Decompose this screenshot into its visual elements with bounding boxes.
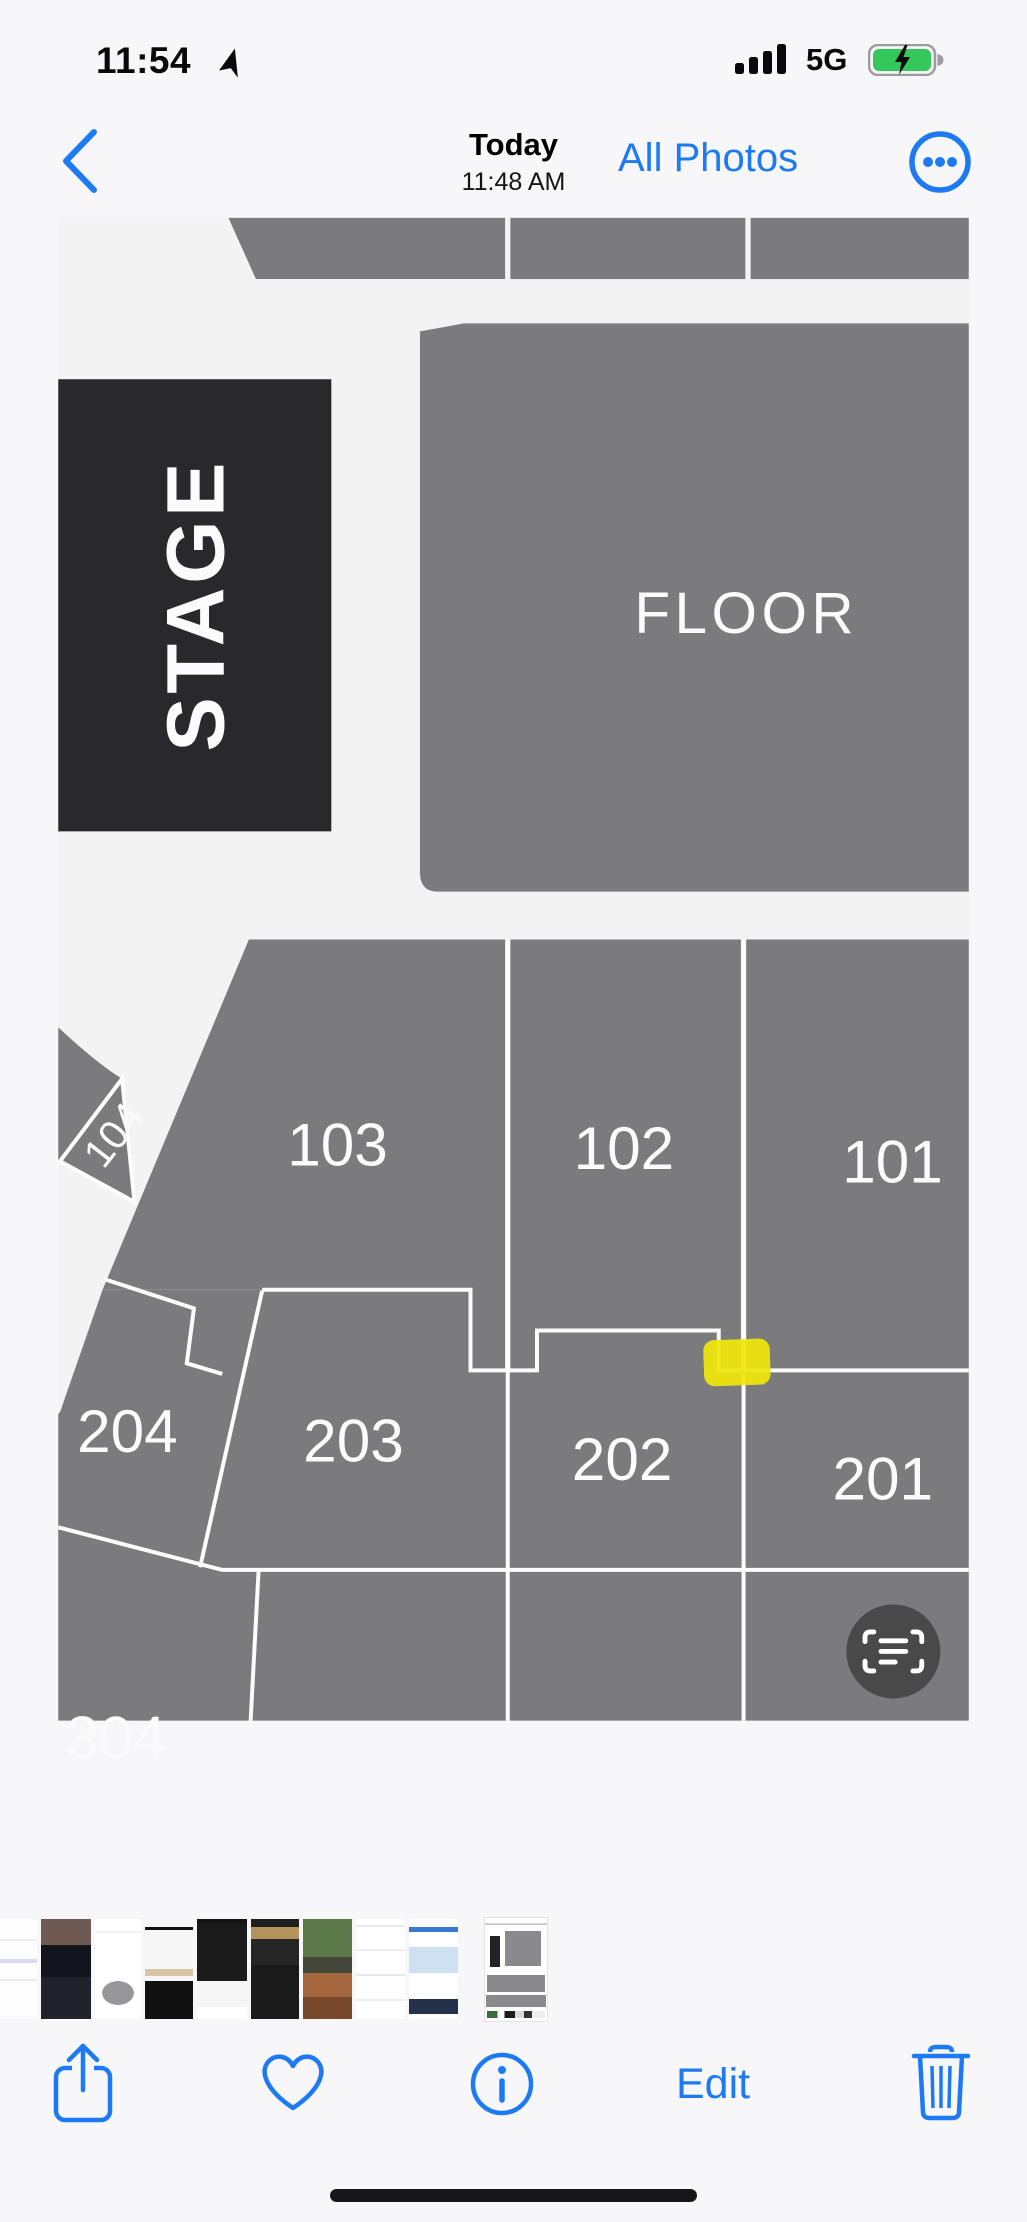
section-201-label: 201 xyxy=(832,1445,933,1513)
all-photos-button[interactable]: All Photos xyxy=(618,136,798,181)
mini-sections-lower xyxy=(486,1995,546,2006)
section-202-label: 202 xyxy=(572,1425,673,1493)
thumbnail[interactable] xyxy=(409,1919,458,2019)
battery-charging-icon xyxy=(868,44,948,76)
info-circle-icon[interactable] xyxy=(468,2050,536,2118)
edit-button[interactable]: Edit xyxy=(676,2060,750,2109)
section-204-label: 204 xyxy=(77,1397,178,1465)
thumbnail[interactable] xyxy=(356,1919,405,2019)
cellular-signal-icon xyxy=(735,44,793,74)
stage-label: STAGE xyxy=(150,459,241,752)
trash-icon[interactable] xyxy=(906,2044,976,2122)
highlighted-seat-marker xyxy=(703,1338,771,1386)
share-icon[interactable] xyxy=(49,2042,117,2126)
thumbnail[interactable] xyxy=(41,1919,91,2019)
live-text-button[interactable] xyxy=(846,1604,940,1698)
section-101-label: 101 xyxy=(842,1127,943,1195)
status-time: 11:54 xyxy=(96,40,191,82)
photo-date-label: Today xyxy=(0,127,1027,163)
section-203-label: 203 xyxy=(303,1407,404,1475)
top-section-mid xyxy=(510,218,745,279)
thumbnail-selected-current-photo[interactable] xyxy=(485,1918,547,2021)
heart-icon[interactable] xyxy=(258,2050,328,2116)
thumbnail[interactable] xyxy=(251,1919,299,2019)
thumbnail[interactable] xyxy=(95,1919,141,2019)
filmstrip xyxy=(0,1918,1027,2022)
ellipsis-circle-icon[interactable] xyxy=(908,130,972,194)
mini-floor xyxy=(505,1931,541,1966)
section-304-label: 304 xyxy=(66,1704,167,1772)
network-type-label: 5G xyxy=(806,42,847,78)
mini-navbar xyxy=(485,1918,547,1927)
photo-view-seating-chart[interactable]: FLOOR STAGE 103 102 101 104 204 203 xyxy=(0,217,1027,1913)
photo-time-label: 11:48 AM xyxy=(0,168,1027,197)
mini-sections-upper xyxy=(487,1975,545,1993)
thumbnail[interactable] xyxy=(145,1919,193,2019)
photos-app-screen: 11:54 5G Today 11:48 AM All Photos xyxy=(0,0,1027,2222)
section-103-label: 103 xyxy=(287,1110,388,1178)
thumbnail[interactable] xyxy=(303,1919,352,2019)
top-section-right xyxy=(751,218,969,279)
thumbnail[interactable] xyxy=(0,1919,37,2019)
floor-label: FLOOR xyxy=(634,581,858,646)
home-indicator[interactable] xyxy=(330,2189,697,2202)
mini-stage xyxy=(490,1936,501,1968)
section-102-label: 102 xyxy=(574,1114,675,1182)
mini-filmstrip xyxy=(487,2011,544,2018)
thumbnail[interactable] xyxy=(197,1919,247,2019)
top-section-left xyxy=(228,218,505,279)
location-arrow-icon xyxy=(215,46,249,80)
